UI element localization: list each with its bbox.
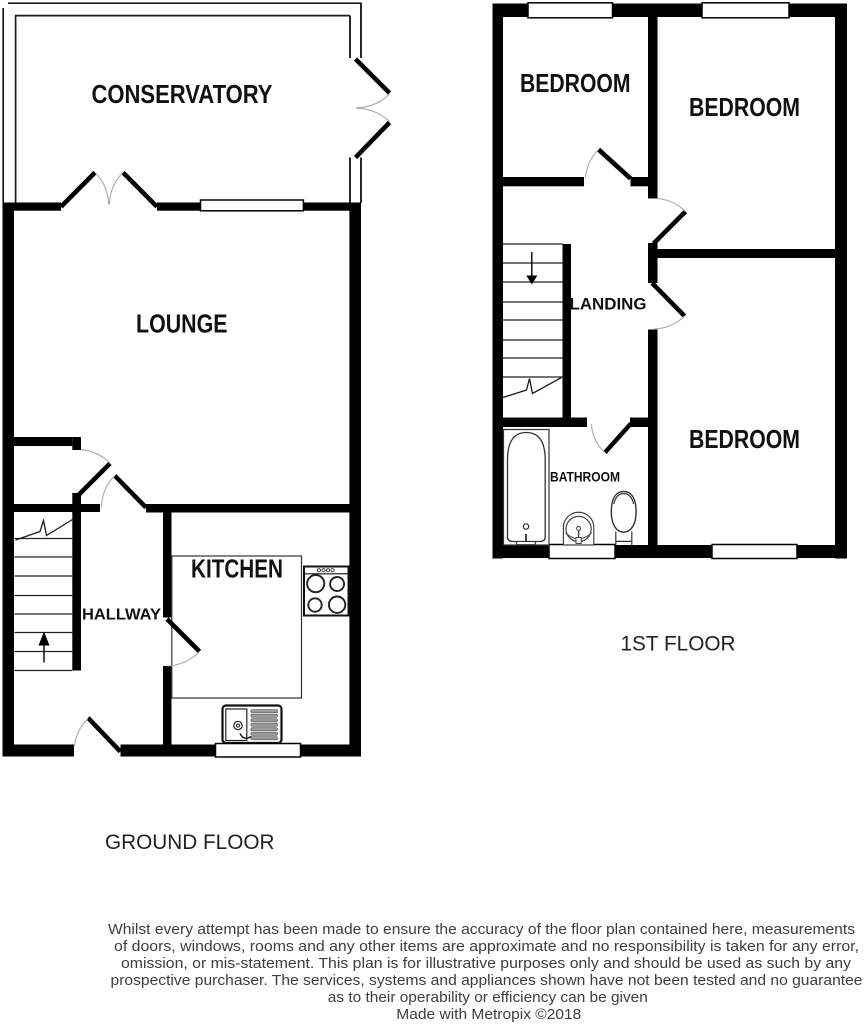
svg-text:BEDROOM: BEDROOM [520, 68, 631, 98]
svg-text:Made with Metropix ©2018: Made with Metropix ©2018 [396, 1006, 581, 1023]
svg-text:LOUNGE: LOUNGE [136, 308, 228, 338]
svg-text:KITCHEN: KITCHEN [191, 554, 283, 584]
svg-text:LANDING: LANDING [570, 296, 647, 314]
svg-text:GROUND FLOOR: GROUND FLOOR [105, 829, 275, 854]
svg-text:BATHROOM: BATHROOM [550, 470, 620, 485]
svg-text:prospective purchaser. The ser: prospective purchaser. The services, sys… [111, 972, 863, 989]
svg-text:omission, or mis-statement. Th: omission, or mis-statement. This plan is… [121, 955, 852, 972]
svg-text:HALLWAY: HALLWAY [82, 607, 161, 624]
svg-text:BEDROOM: BEDROOM [689, 92, 800, 122]
svg-text:Whilst every attempt has been: Whilst every attempt has been made to en… [108, 921, 855, 938]
svg-text:BEDROOM: BEDROOM [689, 424, 800, 454]
svg-text:CONSERVATORY: CONSERVATORY [92, 79, 273, 109]
svg-text:as to their operability or eff: as to their operability or efficiency ca… [328, 989, 648, 1006]
svg-text:of doors, windows, rooms and a: of doors, windows, rooms and any other i… [114, 938, 859, 955]
svg-text:1ST FLOOR: 1ST FLOOR [621, 631, 736, 656]
